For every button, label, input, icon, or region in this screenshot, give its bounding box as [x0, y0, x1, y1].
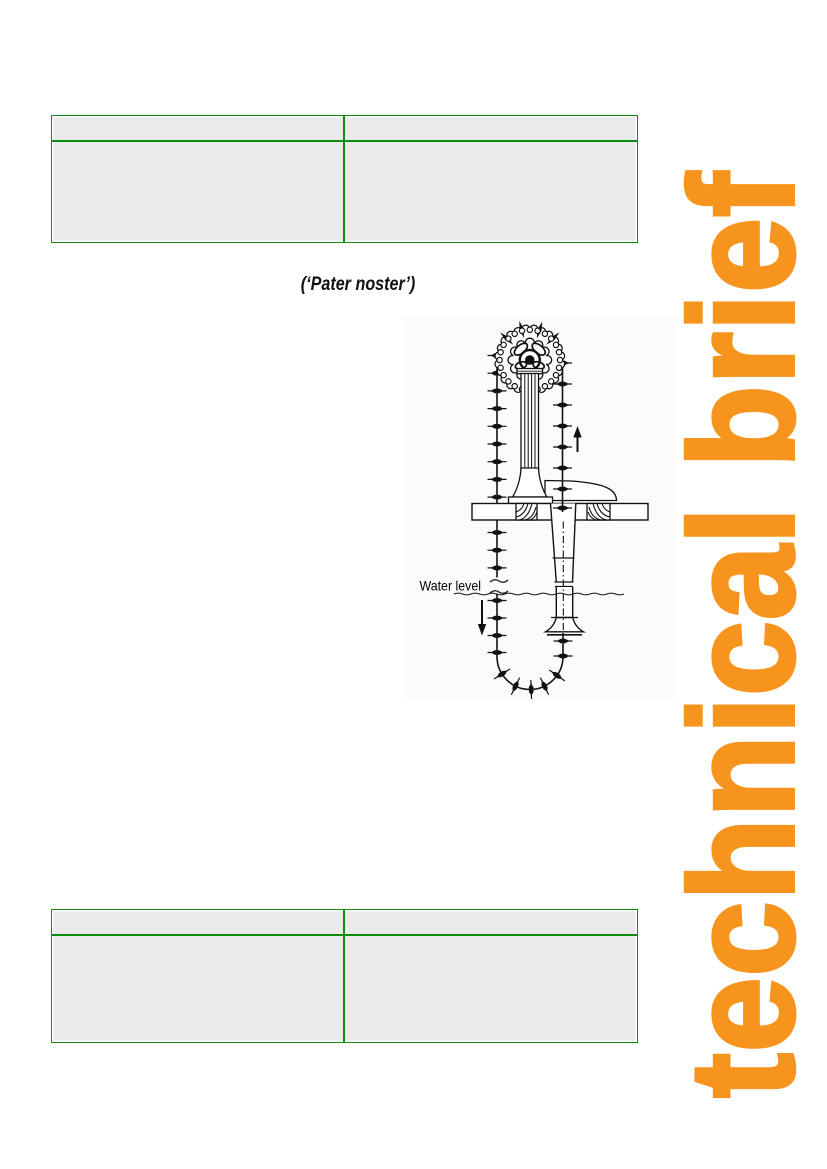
svg-text:Water level: Water level	[420, 578, 482, 594]
